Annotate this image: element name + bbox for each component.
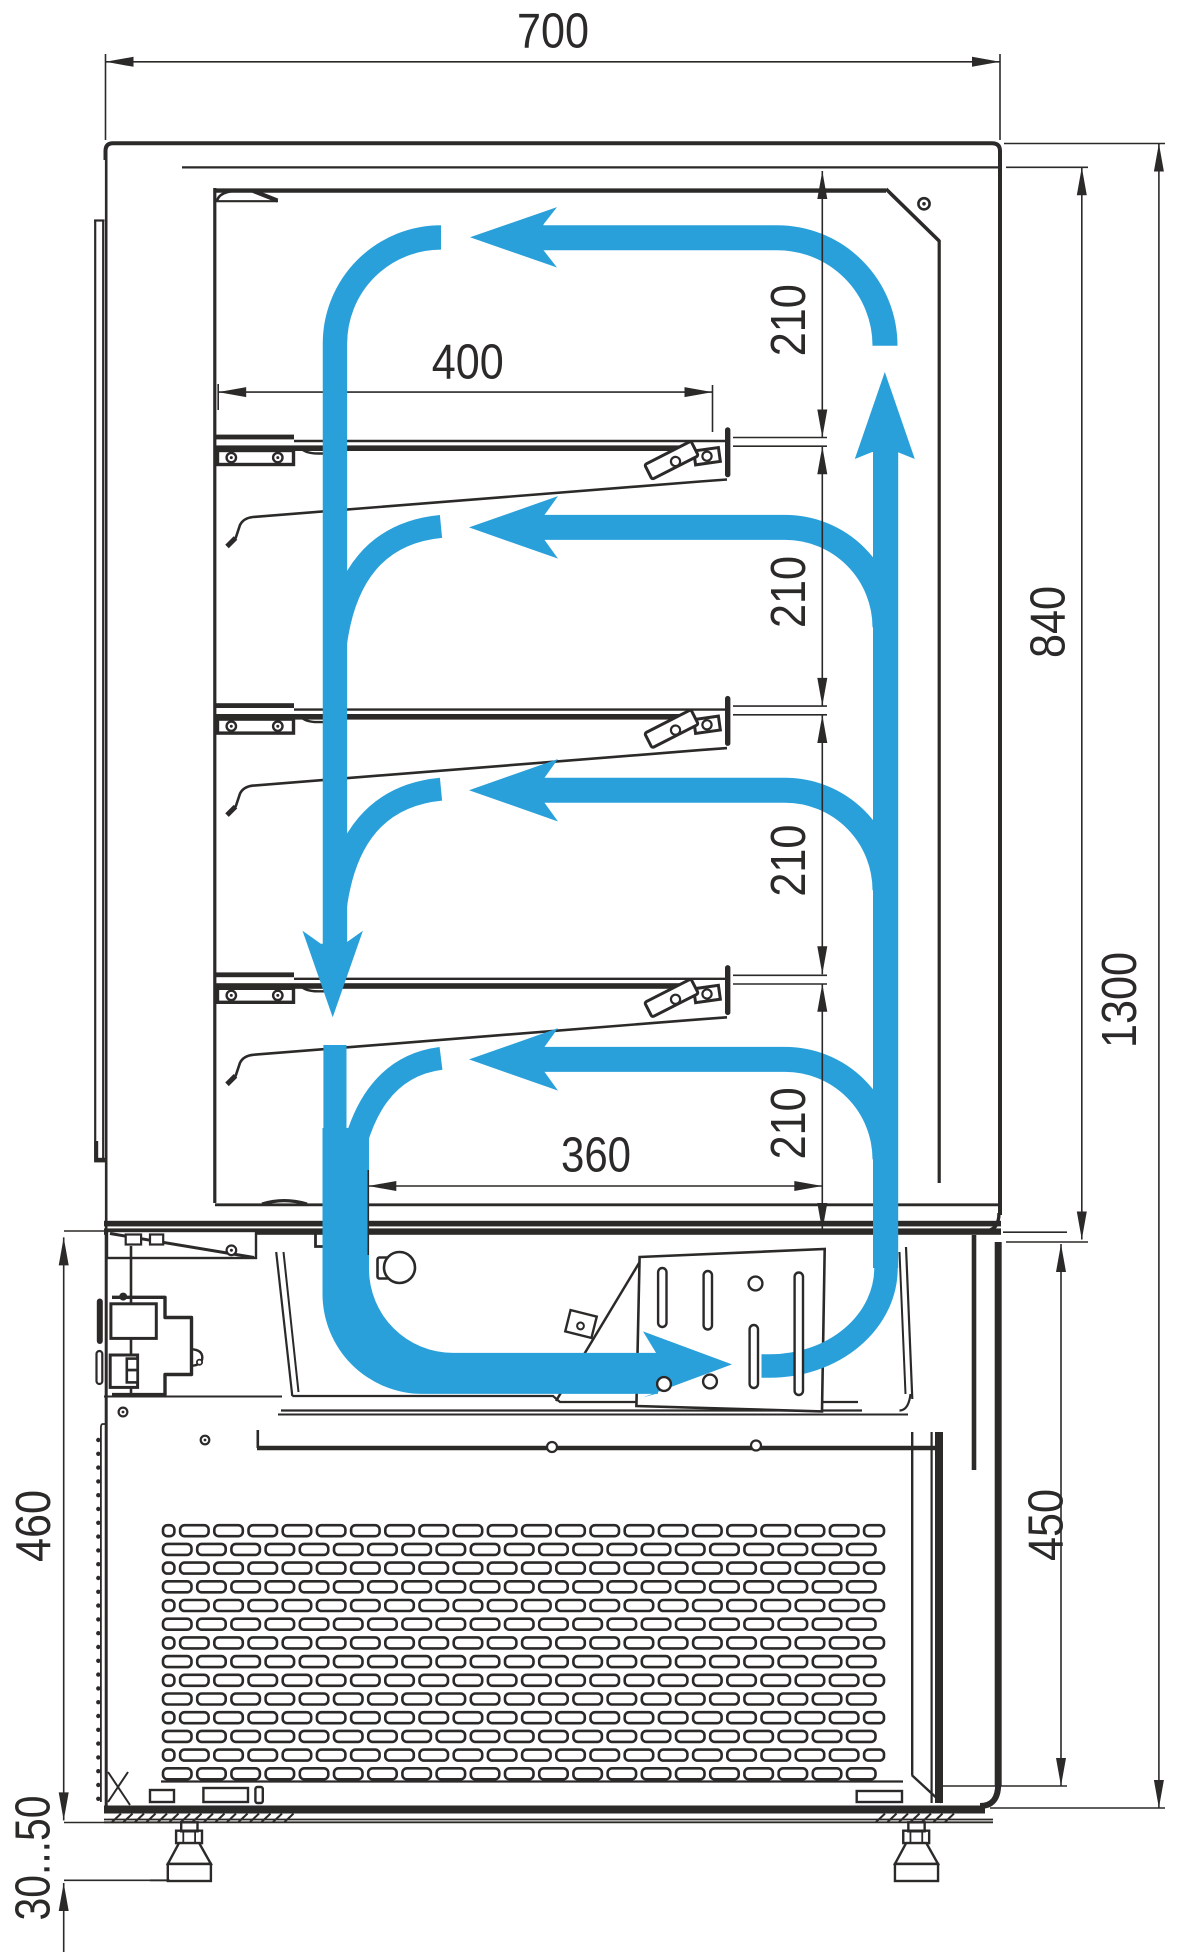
svg-text:210: 210 bbox=[761, 284, 816, 356]
svg-text:360: 360 bbox=[561, 1128, 631, 1183]
svg-text:450: 450 bbox=[1019, 1489, 1074, 1561]
svg-text:210: 210 bbox=[761, 556, 816, 628]
svg-text:30...50: 30...50 bbox=[6, 1796, 61, 1921]
svg-text:460: 460 bbox=[6, 1490, 61, 1562]
svg-text:400: 400 bbox=[432, 335, 504, 390]
svg-text:1300: 1300 bbox=[1092, 952, 1147, 1048]
svg-text:840: 840 bbox=[1021, 586, 1076, 658]
svg-text:210: 210 bbox=[761, 1087, 816, 1159]
svg-text:210: 210 bbox=[761, 825, 816, 897]
svg-text:700: 700 bbox=[517, 4, 589, 59]
